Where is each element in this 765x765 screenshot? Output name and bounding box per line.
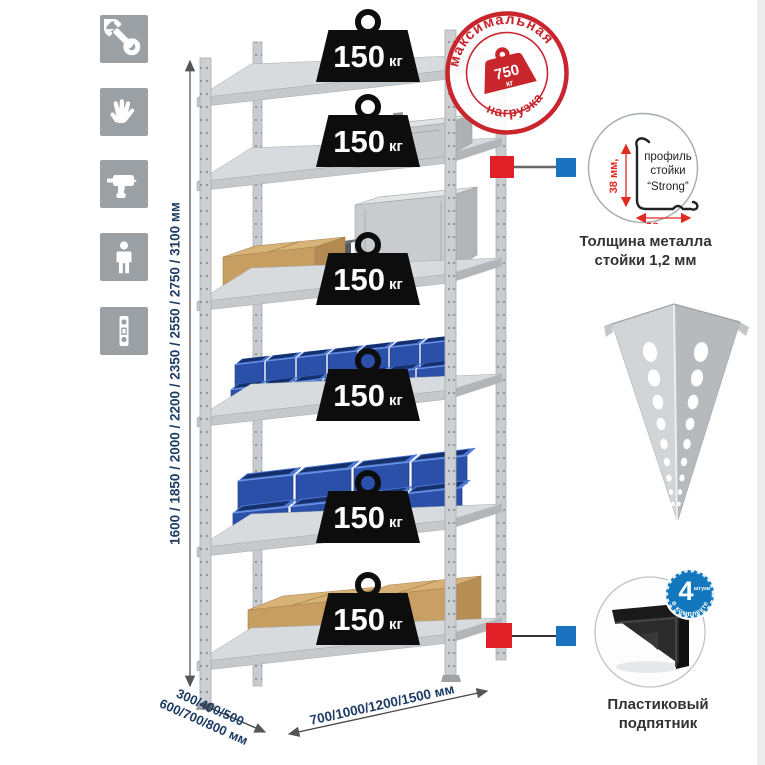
shelf-load-unit: кг	[389, 514, 403, 531]
shelf-load-unit: кг	[389, 276, 403, 293]
profile-dim-horizontal: 38 мм,	[646, 222, 682, 224]
spirit-level-icon	[104, 311, 144, 351]
foot-caption: Пластиковый подпятник	[578, 696, 738, 734]
shelf-load-unit: кг	[389, 392, 403, 409]
shelf-load-value: 150	[333, 264, 385, 295]
badge-word: штуки	[694, 586, 711, 592]
profile-label: стойки	[650, 165, 685, 177]
included-count-badge: 4 штуки в комплекте	[663, 567, 717, 621]
shelf-load-badge: 150кг	[316, 9, 420, 82]
profile-caption: Толщина металла стойки 1,2 мм	[568, 233, 723, 271]
shelf-load-badge: 150кг	[316, 94, 420, 167]
shelf-load-unit: кг	[389, 138, 403, 155]
profile-label: профиль	[644, 151, 692, 163]
shelf-load-value: 150	[333, 126, 385, 157]
shelf-load-badge: 150кг	[316, 470, 420, 543]
corner-post-image	[598, 298, 758, 533]
infographic-canvas: 150кг 150кг 150кг 150кг 150кг 150кг макс…	[0, 0, 765, 765]
foot-caption-line2: подпятник	[578, 715, 738, 734]
callout-marker-blue-bottom	[556, 626, 576, 646]
height-dimension-label: 1600 / 1850 / 2000 / 2200 / 2350 / 2550 …	[168, 49, 183, 699]
person-icon	[104, 237, 144, 277]
shelf-load-badge: 150кг	[316, 572, 420, 645]
drill-icon	[104, 164, 144, 204]
callout-marker-blue-top	[556, 158, 576, 177]
feature-tile-assembly	[100, 15, 148, 63]
profile-dim-vertical: 38 мм,	[608, 159, 620, 194]
shelf-load-badge: 150кг	[316, 232, 420, 305]
feature-tile-drill	[100, 160, 148, 208]
profile-label: “Strong”	[647, 181, 689, 193]
feature-tile-level	[100, 307, 148, 355]
wrench-icon	[104, 19, 144, 59]
shelf-load-badge: 150кг	[316, 348, 420, 421]
shelf-load-value: 150	[333, 41, 385, 72]
foot-caption-line1: Пластиковый	[578, 696, 738, 715]
badge-count: 4	[678, 576, 693, 606]
profile-caption-line2: стойки 1,2 мм	[568, 252, 723, 271]
shelf-load-value: 150	[333, 604, 385, 635]
profile-caption-line1: Толщина металла	[568, 233, 723, 252]
max-load-stamp: максимальная нагрузка 750 кг	[442, 8, 572, 138]
shelf-load-value: 150	[333, 380, 385, 411]
feature-tile-gloves	[100, 88, 148, 136]
feature-tile-person	[100, 233, 148, 281]
post-profile-detail: 38 мм, 38 мм, профиль стойки “Strong”	[587, 112, 699, 224]
shelf-load-unit: кг	[389, 616, 403, 633]
shelf-load-unit: кг	[389, 53, 403, 70]
shelf-load-value: 150	[333, 502, 385, 533]
page-edge-strip	[757, 0, 765, 765]
gloves-icon	[104, 92, 144, 132]
